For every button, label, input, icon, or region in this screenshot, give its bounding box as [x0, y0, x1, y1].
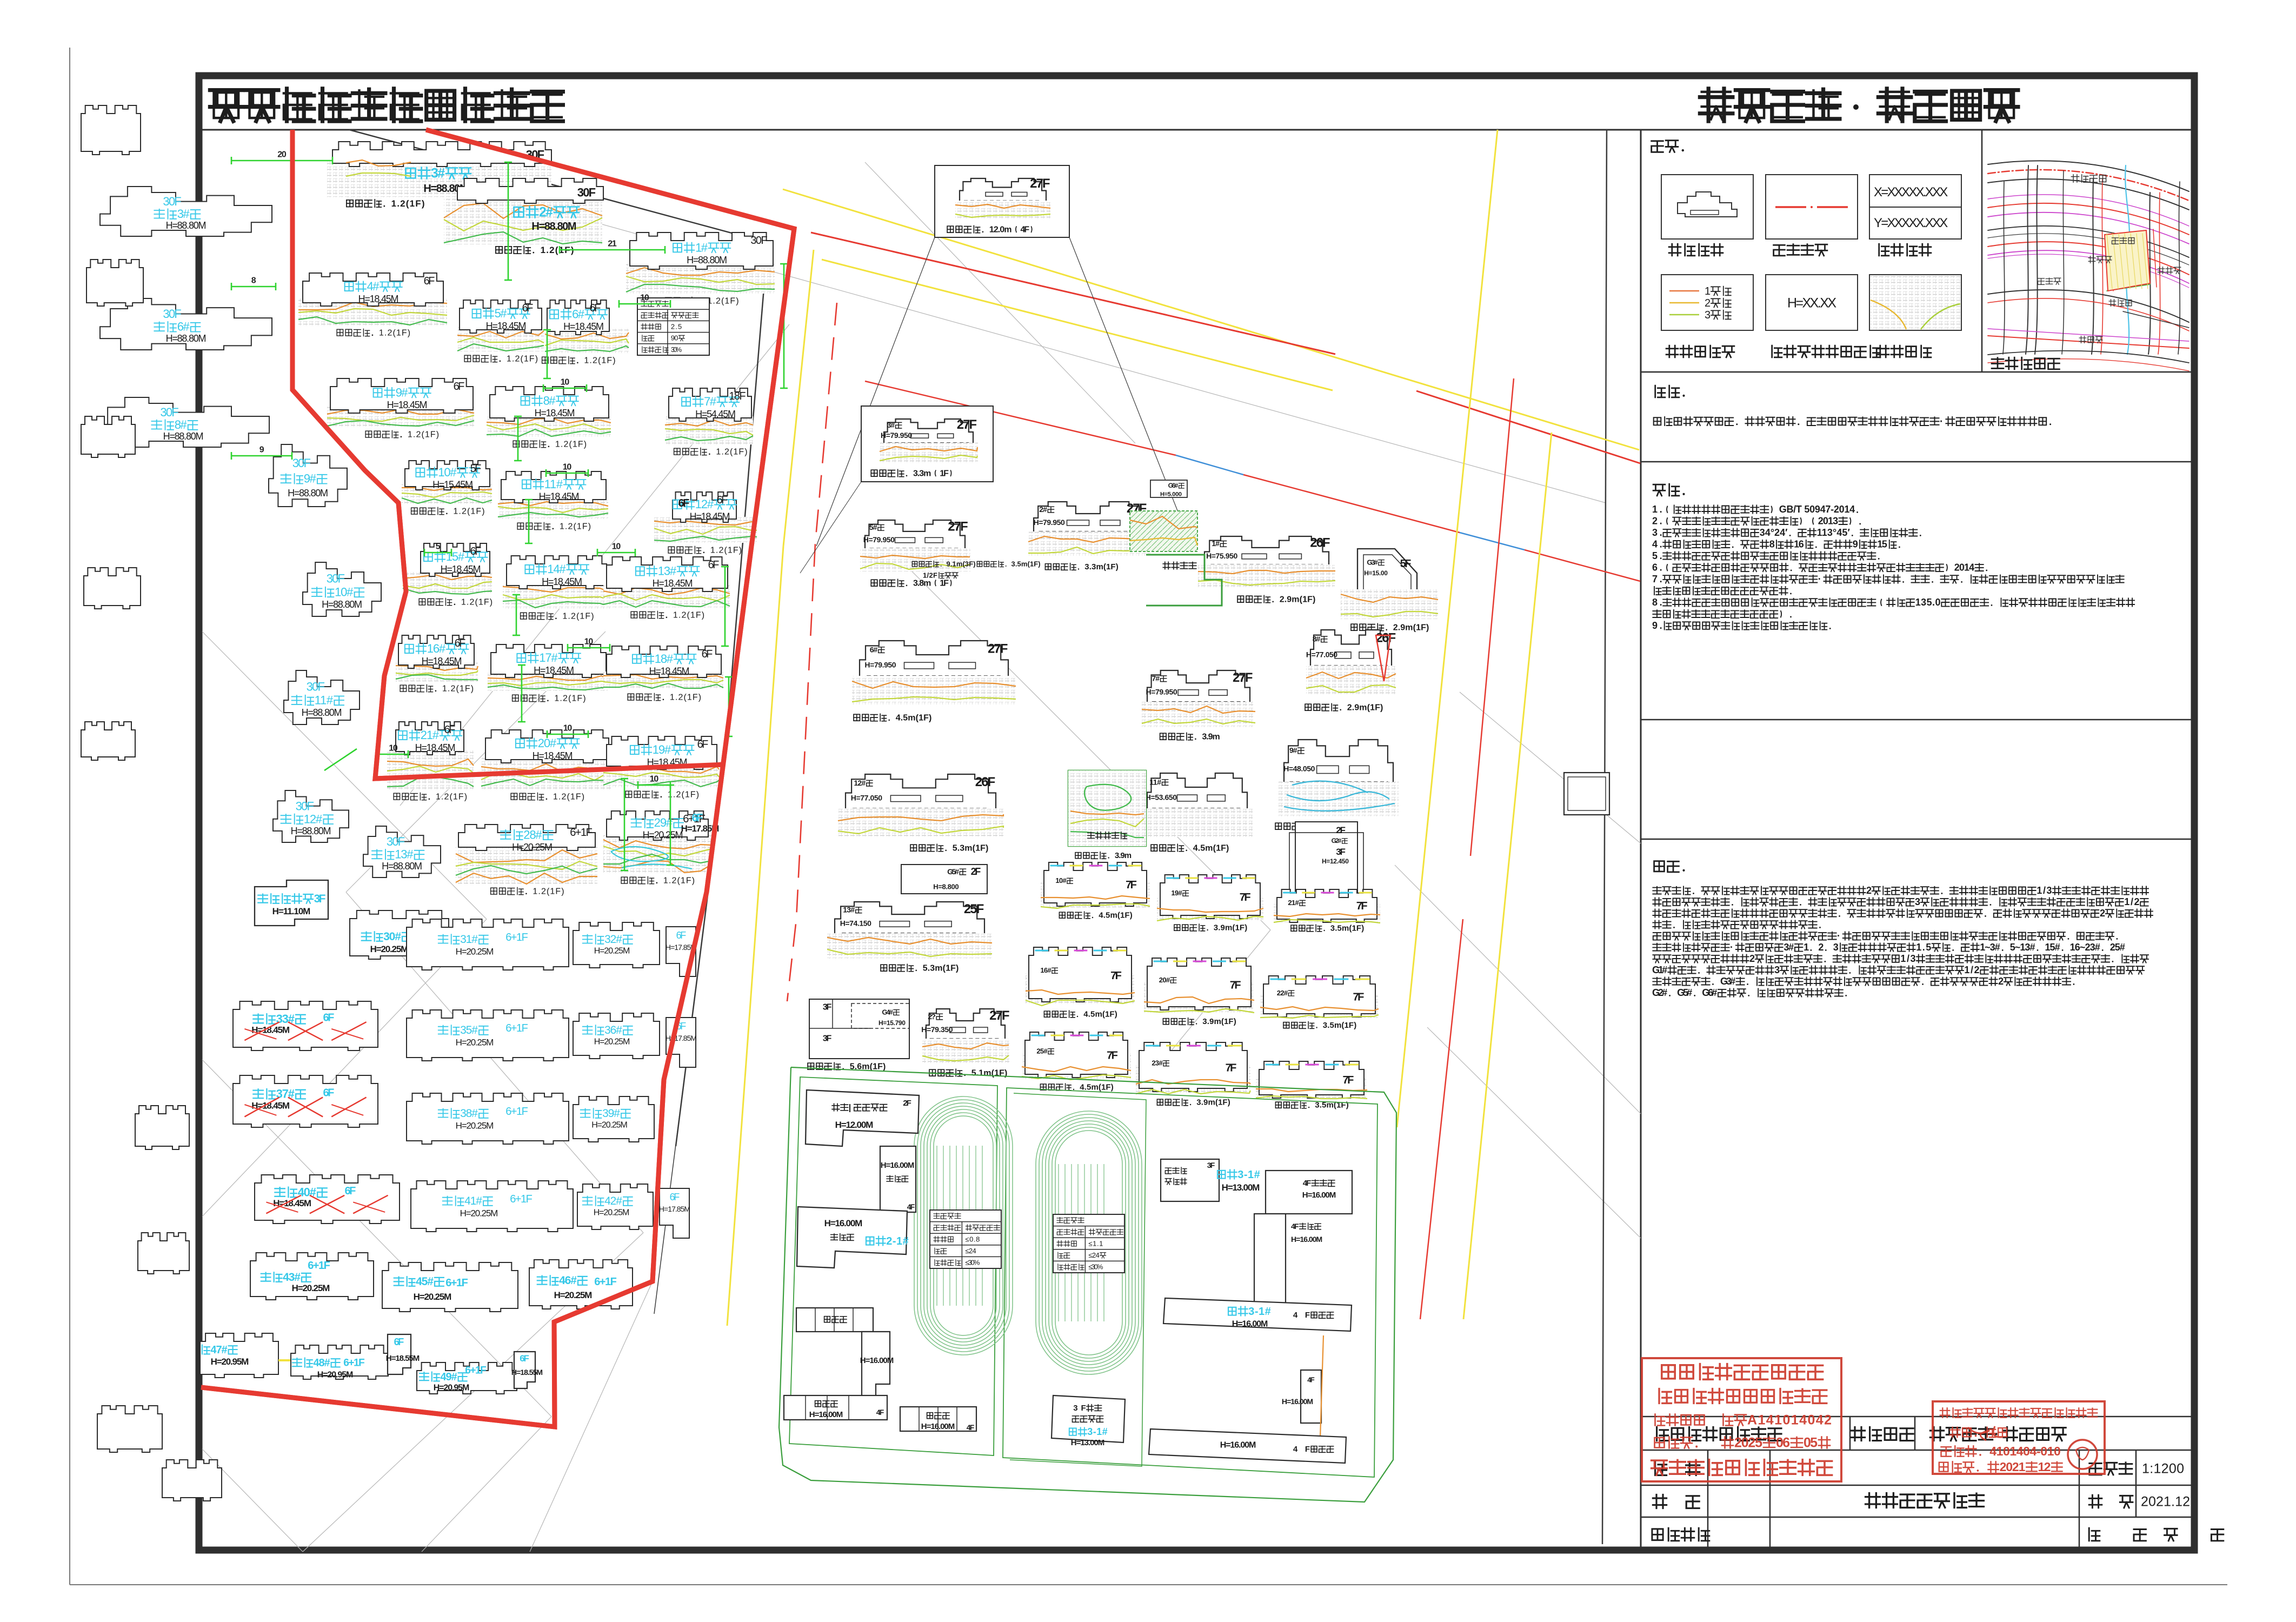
svg-text:H=16.00M: H=16.00M: [1220, 1440, 1256, 1450]
svg-text:G6#: G6#: [1168, 482, 1179, 489]
svg-text:H=88.80M: H=88.80M: [322, 599, 362, 610]
svg-text:9#: 9#: [304, 472, 317, 486]
svg-text:6F: 6F: [323, 1012, 335, 1024]
svg-text:12: 12: [2038, 1460, 2051, 1474]
svg-text:11#: 11#: [1149, 777, 1161, 786]
svg-text:H=16.00M: H=16.00M: [860, 1356, 894, 1365]
svg-text:10: 10: [640, 293, 649, 302]
svg-text:30F: 30F: [163, 195, 181, 208]
svg-text:1F: 1F: [940, 469, 949, 478]
svg-text:H=20.25M: H=20.25M: [594, 1038, 630, 1047]
svg-text:6.: 6.: [1652, 562, 1662, 573]
svg-text:19#: 19#: [653, 743, 671, 756]
svg-text:3F: 3F: [823, 1034, 832, 1043]
svg-text:4.5m(1F): 4.5m(1F): [1099, 911, 1132, 920]
svg-text:7F: 7F: [1356, 900, 1368, 912]
svg-text:1.2(1F): 1.2(1F): [533, 887, 564, 896]
svg-text:1.2(1F): 1.2(1F): [562, 611, 594, 621]
svg-text:39#: 39#: [602, 1107, 620, 1120]
svg-text:10#: 10#: [438, 466, 457, 479]
svg-text:10: 10: [612, 542, 621, 551]
svg-text:1: 1: [1803, 942, 1809, 953]
svg-text:H=88.80M: H=88.80M: [166, 220, 207, 231]
svg-text:H=20.25M: H=20.25M: [370, 944, 409, 954]
svg-text:6+1F: 6+1F: [505, 1022, 528, 1034]
svg-text:2: 2: [1818, 942, 1824, 953]
svg-text:28#: 28#: [523, 828, 542, 841]
svg-text:32#: 32#: [604, 933, 622, 946]
svg-text:6F: 6F: [520, 1353, 529, 1364]
svg-text:35#: 35#: [460, 1024, 478, 1036]
svg-text:1.2(1F): 1.2(1F): [379, 328, 410, 337]
svg-text:34°24′: 34°24′: [1760, 527, 1788, 538]
svg-text:H=88.80M: H=88.80M: [382, 861, 422, 872]
svg-text:5.3m(1F): 5.3m(1F): [953, 843, 989, 853]
svg-text:·: ·: [1940, 416, 1943, 428]
svg-text:05: 05: [1803, 1435, 1818, 1451]
svg-text:17#: 17#: [539, 651, 558, 664]
svg-text:1.2(1F): 1.2(1F): [442, 684, 474, 693]
svg-text:3F: 3F: [314, 893, 326, 905]
svg-text:9.1m(3F): 9.1m(3F): [947, 560, 976, 568]
svg-text:3: 3: [1774, 965, 1780, 975]
svg-text:GB/T 50947-2014: GB/T 50947-2014: [1779, 504, 1855, 515]
svg-text:≤24: ≤24: [965, 1247, 976, 1255]
svg-text:1.2(1F): 1.2(1F): [453, 507, 484, 516]
svg-text:7F: 7F: [1110, 970, 1122, 982]
svg-text:1.2(1F): 1.2(1F): [716, 447, 747, 456]
svg-text:4#: 4#: [367, 280, 380, 293]
svg-text:8#: 8#: [175, 418, 188, 431]
svg-text:37#: 37#: [276, 1087, 295, 1101]
svg-text:H=20.25M: H=20.25M: [292, 1283, 330, 1293]
svg-text:H=18.45M: H=18.45M: [486, 321, 527, 331]
svg-text:1.2(1F): 1.2(1F): [507, 354, 538, 363]
svg-text:10: 10: [563, 462, 572, 471]
svg-text:H=16.00M: H=16.00M: [1291, 1235, 1322, 1244]
svg-text:46#: 46#: [559, 1274, 577, 1287]
svg-text:H=12.00M: H=12.00M: [835, 1120, 874, 1130]
svg-text:10#: 10#: [1055, 876, 1067, 885]
svg-text:8#: 8#: [543, 394, 556, 408]
svg-text:10: 10: [563, 723, 573, 733]
svg-text:3: 3: [1915, 896, 1920, 907]
svg-text:X=XXXXX.XXX: X=XXXXX.XXX: [1874, 185, 1948, 200]
svg-text:1~3#: 1~3#: [1980, 942, 2000, 953]
svg-text:4F: 4F: [907, 1202, 915, 1211]
svg-text:H=77.050: H=77.050: [851, 794, 882, 802]
svg-text:1.2(1F): 1.2(1F): [553, 792, 584, 801]
svg-text:|: |: [849, 1103, 851, 1112]
svg-text:H=17.85M: H=17.85M: [665, 1034, 697, 1042]
svg-text:6F: 6F: [470, 546, 482, 557]
svg-text:H=16.00M: H=16.00M: [881, 1161, 914, 1170]
svg-text:14#: 14#: [547, 562, 566, 576]
svg-text:6F: 6F: [590, 302, 601, 314]
svg-text:H=20.25M: H=20.25M: [512, 842, 553, 853]
svg-text:3.9m(1F): 3.9m(1F): [1214, 923, 1247, 933]
svg-text:2F: 2F: [1336, 825, 1346, 835]
svg-text:6+1F: 6+1F: [308, 1260, 330, 1272]
svg-text:16#: 16#: [1040, 966, 1051, 974]
svg-text:4F: 4F: [967, 1423, 975, 1432]
svg-text:5~13#: 5~13#: [2010, 942, 2035, 953]
svg-text:6F: 6F: [692, 812, 703, 824]
svg-text:1.2(1F): 1.2(1F): [673, 610, 704, 620]
svg-text:H=8.800: H=8.800: [933, 882, 959, 890]
svg-text:30F: 30F: [387, 835, 405, 848]
svg-text:3.3m: 3.3m: [913, 469, 931, 478]
svg-text:26F: 26F: [1310, 536, 1330, 550]
svg-text:3.9m: 3.9m: [1115, 851, 1132, 860]
svg-text:3.5m(1F): 3.5m(1F): [1011, 560, 1041, 568]
svg-text:10: 10: [561, 377, 570, 387]
svg-text:6+1F: 6+1F: [505, 932, 528, 943]
svg-text:H=18.45M: H=18.45M: [441, 564, 481, 575]
svg-text:H=20.25M: H=20.25M: [460, 1208, 498, 1219]
svg-text:5: 5: [436, 542, 441, 551]
svg-text:6F: 6F: [454, 381, 465, 393]
svg-text:H=12.450: H=12.450: [1322, 857, 1349, 865]
svg-text:2: 2: [1866, 885, 1872, 896]
svg-text:3.8m: 3.8m: [913, 579, 931, 588]
svg-text:H=88.80M: H=88.80M: [531, 221, 576, 232]
svg-text:G3#: G3#: [1720, 976, 1735, 987]
svg-text:19#: 19#: [1171, 889, 1182, 897]
svg-text:30%: 30%: [671, 345, 682, 354]
svg-text:4.5m(1F): 4.5m(1F): [1083, 1010, 1117, 1019]
svg-text:5#: 5#: [495, 307, 508, 320]
svg-text:G4#: G4#: [882, 1008, 893, 1016]
svg-text:H=20.95M: H=20.95M: [211, 1357, 249, 1367]
svg-text:6+1F: 6+1F: [465, 1365, 487, 1377]
svg-text:5F: 5F: [1400, 558, 1412, 570]
svg-text:6F: 6F: [444, 724, 456, 736]
svg-text:2014: 2014: [1954, 562, 1974, 573]
svg-text:3.9m(1F): 3.9m(1F): [1196, 1098, 1230, 1107]
svg-text:2.9m(1F): 2.9m(1F): [1347, 703, 1383, 712]
svg-text:4.: 4.: [1652, 539, 1662, 550]
svg-text:12#: 12#: [695, 497, 714, 511]
svg-text:30F: 30F: [292, 456, 311, 470]
svg-text:5.3m(1F): 5.3m(1F): [923, 963, 959, 973]
svg-text:13#: 13#: [843, 906, 855, 914]
svg-text:H=79.950: H=79.950: [1146, 688, 1177, 696]
svg-text:1F: 1F: [940, 579, 949, 588]
svg-text:H=79.950: H=79.950: [881, 431, 912, 440]
svg-text:2021: 2021: [2000, 1460, 2026, 1474]
svg-text:2021.12: 2021.12: [2141, 1494, 2190, 1510]
svg-text:H=18.45M: H=18.45M: [387, 400, 428, 410]
svg-text:6#: 6#: [572, 308, 585, 321]
svg-text:3.9m(1F): 3.9m(1F): [1202, 1017, 1236, 1026]
svg-text:9: 9: [1853, 539, 1858, 550]
svg-text:4.5m(1F): 4.5m(1F): [896, 713, 932, 722]
svg-text:30#: 30#: [383, 930, 401, 943]
svg-text:H=16.00M: H=16.00M: [1282, 1397, 1313, 1406]
svg-text:6+1F: 6+1F: [343, 1358, 365, 1369]
svg-text:30F: 30F: [296, 799, 314, 813]
svg-text:1.2(1F): 1.2(1F): [461, 597, 493, 607]
svg-text:H=20.25M: H=20.25M: [456, 947, 494, 957]
svg-text:1.2(1F): 1.2(1F): [436, 792, 467, 801]
svg-text:7#: 7#: [1152, 674, 1160, 683]
svg-text:6F: 6F: [678, 497, 690, 509]
svg-text:H=53.650: H=53.650: [1146, 793, 1177, 802]
svg-text:6F: 6F: [394, 1337, 404, 1347]
svg-text:3-1#: 3-1#: [1087, 1426, 1107, 1437]
svg-text:H=79.950: H=79.950: [1034, 518, 1065, 527]
svg-text:G5#: G5#: [947, 867, 959, 876]
svg-text:6F: 6F: [708, 559, 720, 571]
svg-text:1.2(1F): 1.2(1F): [670, 693, 701, 702]
svg-text:H=20.95M: H=20.95M: [434, 1383, 470, 1392]
svg-text:≤30%: ≤30%: [1088, 1263, 1103, 1271]
svg-text:H=54.45M: H=54.45M: [695, 409, 736, 420]
svg-text:8#: 8#: [1313, 635, 1321, 643]
svg-text:12#: 12#: [854, 779, 866, 787]
svg-text:H=18.45M: H=18.45M: [649, 666, 690, 677]
svg-text:9: 9: [259, 445, 264, 454]
svg-text:3.5m(1F): 3.5m(1F): [1330, 924, 1364, 933]
svg-text:2.: 2.: [1652, 516, 1662, 527]
svg-text:H=18.55M: H=18.55M: [386, 1354, 420, 1363]
svg-text:H=16.00M: H=16.00M: [1302, 1191, 1336, 1200]
svg-text:15#: 15#: [2045, 942, 2060, 953]
svg-text:G3#: G3#: [1367, 558, 1378, 566]
svg-text:7F: 7F: [1343, 1074, 1354, 1086]
svg-text:2#: 2#: [1039, 505, 1047, 514]
svg-text:G6#: G6#: [1702, 987, 1717, 998]
svg-text:2F: 2F: [903, 1099, 911, 1108]
svg-text:6#: 6#: [870, 645, 878, 654]
svg-text:9#: 9#: [396, 386, 409, 400]
svg-text:20#: 20#: [1159, 976, 1170, 984]
svg-text:H=13.00M: H=13.00M: [1071, 1438, 1104, 1447]
svg-text:3#: 3#: [177, 207, 190, 221]
svg-text:6F: 6F: [424, 275, 435, 287]
svg-text:3#: 3#: [1783, 942, 1794, 953]
svg-text:H=20.25M: H=20.25M: [414, 1292, 452, 1302]
svg-text:H=18.45M: H=18.45M: [533, 750, 573, 761]
svg-text:6F: 6F: [702, 648, 713, 660]
svg-text:13#: 13#: [395, 848, 414, 861]
svg-text:5F: 5F: [470, 463, 482, 475]
svg-text:1#: 1#: [1212, 539, 1220, 548]
svg-text:7F: 7F: [1240, 892, 1251, 903]
svg-text:H=20.25M: H=20.25M: [643, 830, 683, 841]
svg-text:23#: 23#: [1152, 1059, 1163, 1067]
svg-text:7#: 7#: [704, 395, 717, 408]
svg-text:3#: 3#: [887, 421, 895, 429]
svg-text:H=77.050: H=77.050: [1306, 650, 1337, 659]
svg-text:H=16.00M: H=16.00M: [809, 1410, 843, 1419]
svg-text:1: 1: [1705, 285, 1711, 297]
svg-text:G2#: G2#: [1332, 837, 1342, 845]
svg-text:1/3: 1/3: [1900, 953, 1915, 964]
svg-text:7.: 7.: [1652, 574, 1662, 584]
svg-text:2?: 2?: [928, 1012, 936, 1021]
svg-text:27F: 27F: [988, 641, 1008, 656]
svg-text:135.0: 135.0: [1915, 597, 1941, 608]
svg-text:1.2(1F): 1.2(1F): [554, 694, 585, 703]
svg-text:7F: 7F: [1353, 991, 1365, 1003]
svg-text:13#: 13#: [658, 564, 677, 578]
svg-text:1.2(1F): 1.2(1F): [663, 876, 695, 885]
svg-text:3.3m(1F): 3.3m(1F): [1084, 562, 1118, 571]
svg-text:1.2(1F): 1.2(1F): [560, 522, 591, 531]
svg-text:6F: 6F: [697, 739, 709, 750]
svg-text:48#: 48#: [313, 1357, 330, 1369]
svg-text:3#: 3#: [431, 166, 445, 181]
svg-text:H=79.950: H=79.950: [863, 535, 895, 544]
svg-text:16#: 16#: [427, 642, 446, 655]
svg-text:2: 2: [1998, 976, 2004, 987]
svg-text:21: 21: [608, 239, 617, 248]
svg-text:27F: 27F: [1030, 176, 1050, 191]
svg-text:2.9m(1F): 2.9m(1F): [1393, 623, 1429, 632]
svg-text:H=15.45M: H=15.45M: [432, 480, 473, 490]
svg-text:38#: 38#: [460, 1107, 478, 1120]
svg-text:6F: 6F: [717, 494, 728, 506]
svg-text:4.5m(1F): 4.5m(1F): [1080, 1083, 1113, 1092]
svg-text:H=88.80M: H=88.80M: [288, 488, 328, 498]
svg-text:6+1F: 6+1F: [445, 1277, 468, 1289]
svg-text:G1#: G1#: [1652, 965, 1667, 975]
svg-text:42#: 42#: [604, 1195, 622, 1207]
svg-text:H=16.00M: H=16.00M: [1232, 1319, 1268, 1328]
svg-text:26F: 26F: [975, 775, 995, 789]
svg-text:27F: 27F: [957, 417, 977, 432]
svg-text:H=20.25M: H=20.25M: [594, 1208, 630, 1218]
svg-text:2#: 2#: [539, 205, 553, 220]
svg-text:1:1200: 1:1200: [2142, 1461, 2184, 1477]
svg-text:H=15.790: H=15.790: [879, 1019, 906, 1027]
svg-text:30F: 30F: [577, 186, 596, 200]
svg-text:4F: 4F: [1303, 1179, 1312, 1188]
svg-text:H=20.25M: H=20.25M: [554, 1290, 593, 1300]
svg-text:3-1#: 3-1#: [1248, 1306, 1271, 1318]
svg-text:1.: 1.: [1652, 504, 1662, 515]
svg-text:H=20.95M: H=20.95M: [317, 1370, 354, 1379]
svg-text:3F: 3F: [1336, 847, 1346, 857]
svg-text:H=11.10M: H=11.10M: [272, 906, 311, 916]
svg-text:H=20.25M: H=20.25M: [456, 1038, 494, 1048]
svg-text:1.2(1F): 1.2(1F): [707, 296, 738, 305]
svg-text:H=18.55M: H=18.55M: [511, 1368, 543, 1377]
svg-text:30F: 30F: [307, 680, 325, 694]
svg-text:6F: 6F: [345, 1185, 356, 1197]
svg-text:1/2: 1/2: [1964, 965, 1979, 975]
svg-text:H=16.00M: H=16.00M: [921, 1422, 955, 1431]
svg-text:7F: 7F: [1230, 979, 1241, 991]
svg-text:90: 90: [671, 334, 678, 342]
svg-text:4F: 4F: [1307, 1375, 1315, 1384]
svg-text:20: 20: [277, 150, 287, 159]
svg-text:H=18.45M: H=18.45M: [358, 294, 399, 304]
svg-text:21#: 21#: [1288, 899, 1299, 907]
svg-text:2013: 2013: [1818, 516, 1838, 527]
svg-text:1/2: 1/2: [2124, 896, 2139, 907]
svg-text:4F: 4F: [876, 1408, 884, 1417]
svg-text:G5#: G5#: [1677, 987, 1692, 998]
svg-text:18#: 18#: [655, 652, 674, 666]
svg-text:H=13.00M: H=13.00M: [1222, 1182, 1260, 1193]
svg-text:3F: 3F: [1207, 1161, 1215, 1169]
svg-text:H=18.45M: H=18.45M: [534, 665, 574, 676]
svg-text:4F: 4F: [1021, 225, 1030, 234]
svg-text:10#: 10#: [335, 586, 354, 599]
svg-text:36#: 36#: [604, 1024, 622, 1036]
svg-text:25#: 25#: [2110, 942, 2125, 953]
svg-text:5#: 5#: [869, 523, 877, 531]
svg-text:49#: 49#: [440, 1371, 457, 1383]
svg-text:6F: 6F: [455, 637, 466, 649]
svg-text:4F: 4F: [1291, 1222, 1299, 1231]
svg-text:22#: 22#: [1277, 989, 1288, 997]
svg-text:A141014042: A141014042: [1747, 1413, 1832, 1428]
svg-text:7F: 7F: [1107, 1050, 1118, 1062]
svg-text:31#: 31#: [460, 933, 478, 946]
svg-text:H=88.80M: H=88.80M: [163, 431, 204, 442]
svg-text:·: ·: [1837, 930, 1840, 941]
svg-text:G2#: G2#: [1652, 987, 1667, 998]
svg-text:4.5m(1F): 4.5m(1F): [1193, 843, 1229, 853]
svg-text:30F: 30F: [160, 405, 178, 419]
svg-text:6F: 6F: [323, 1087, 335, 1099]
svg-text:H=XX.XX: H=XX.XX: [1787, 296, 1836, 311]
svg-text:2: 2: [2100, 908, 2105, 919]
svg-text:6F: 6F: [522, 302, 534, 314]
svg-text:45#: 45#: [416, 1275, 434, 1288]
svg-text:2.9m(1F): 2.9m(1F): [1280, 595, 1316, 604]
svg-text:1.2(1F): 1.2(1F): [555, 440, 587, 449]
svg-text:30F: 30F: [163, 307, 181, 321]
svg-text:25#: 25#: [1036, 1047, 1048, 1055]
svg-text:H=18.45M: H=18.45M: [563, 321, 604, 332]
svg-text:H=18.45M: H=18.45M: [690, 511, 730, 522]
svg-text:27F: 27F: [948, 520, 968, 534]
svg-text:1.2(1F): 1.2(1F): [668, 790, 699, 799]
svg-text:H=79.350: H=79.350: [921, 1025, 953, 1034]
svg-text:15: 15: [1877, 539, 1887, 550]
svg-text:H=18.45M: H=18.45M: [535, 408, 575, 418]
svg-text:25F: 25F: [964, 902, 984, 916]
svg-text:H=75.950: H=75.950: [1206, 551, 1237, 560]
svg-text:Y=XXXXX.XXX: Y=XXXXX.XXX: [1874, 216, 1948, 230]
svg-text:41#: 41#: [464, 1195, 482, 1207]
svg-text:1/3: 1/3: [2037, 885, 2052, 896]
svg-text:1.2(1F): 1.2(1F): [408, 430, 439, 439]
svg-text:6+1F: 6+1F: [510, 1193, 533, 1205]
svg-text:2: 2: [1705, 297, 1711, 309]
svg-text:8: 8: [251, 276, 256, 285]
svg-text:7F: 7F: [1226, 1062, 1237, 1074]
svg-text:3.: 3.: [1652, 527, 1662, 538]
svg-text:1.2(1F): 1.2(1F): [710, 546, 742, 555]
svg-text:2-1#: 2-1#: [886, 1235, 909, 1247]
svg-text:≤1.1: ≤1.1: [1088, 1239, 1103, 1247]
svg-text:6+1F: 6+1F: [594, 1276, 617, 1288]
svg-text:H=20.25M: H=20.25M: [594, 947, 630, 956]
svg-text:≤30%: ≤30%: [965, 1259, 980, 1267]
svg-text:12.0m: 12.0m: [989, 225, 1012, 234]
svg-text:1/2F: 1/2F: [923, 571, 937, 579]
svg-text:H=16.00M: H=16.00M: [824, 1218, 863, 1228]
svg-text:8: 8: [1769, 539, 1775, 550]
svg-text:6+1F: 6+1F: [505, 1106, 528, 1118]
svg-text:3: 3: [1705, 309, 1711, 321]
